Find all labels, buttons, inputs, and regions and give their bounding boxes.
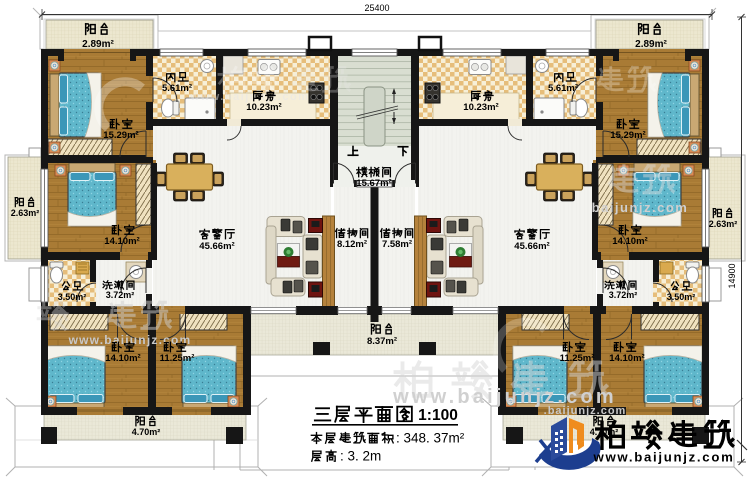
svg-text:14.10m²: 14.10m²	[104, 236, 139, 247]
svg-text:14900: 14900	[727, 263, 737, 288]
svg-text:15.29m²: 15.29m²	[610, 130, 645, 141]
svg-text:: 348. 37m²: : 348. 37m²	[396, 431, 465, 446]
svg-text:14.10m²: 14.10m²	[612, 236, 647, 247]
svg-text:11.25m²: 11.25m²	[160, 353, 195, 364]
svg-text:14.10m²: 14.10m²	[609, 353, 644, 364]
svg-text:1:100: 1:100	[418, 407, 458, 424]
svg-text:25400: 25400	[364, 3, 389, 13]
svg-text:.baijunjz.com: .baijunjz.com	[544, 405, 627, 417]
svg-text:2.63m²: 2.63m²	[11, 208, 40, 218]
svg-text:15.67m²: 15.67m²	[356, 178, 391, 189]
svg-text:: 3. 2m: : 3. 2m	[340, 449, 381, 464]
svg-text:8.37m²: 8.37m²	[367, 336, 397, 347]
svg-text:5.61m²: 5.61m²	[548, 83, 578, 94]
svg-text:14.10m²: 14.10m²	[105, 353, 140, 364]
svg-text:45.66m²: 45.66m²	[199, 241, 234, 252]
svg-text:8.12m²: 8.12m²	[337, 239, 367, 250]
svg-text:15.29m²: 15.29m²	[103, 130, 138, 141]
svg-text:www.baijunjz.com: www.baijunjz.com	[592, 450, 734, 465]
svg-text:www.baijunjz.com: www.baijunjz.com	[68, 333, 192, 347]
svg-text:7.58m²: 7.58m²	[382, 239, 412, 250]
svg-text:3.72m²: 3.72m²	[609, 290, 638, 300]
svg-text:2.63m²: 2.63m²	[709, 219, 738, 229]
svg-text:11.25m²: 11.25m²	[560, 353, 595, 364]
svg-text:4.70m²: 4.70m²	[132, 427, 161, 437]
svg-text:2.89m²: 2.89m²	[82, 39, 114, 50]
svg-text:3.50m²: 3.50m²	[667, 292, 696, 302]
svg-text:10.23m²: 10.23m²	[246, 102, 281, 113]
svg-text:3.50m²: 3.50m²	[58, 292, 87, 302]
svg-text:2.89m²: 2.89m²	[635, 39, 667, 50]
svg-text:10.23m²: 10.23m²	[463, 102, 498, 113]
svg-text:5.61m²: 5.61m²	[162, 83, 192, 94]
svg-text:baijunjz.com: baijunjz.com	[592, 200, 689, 215]
svg-text:3.72m²: 3.72m²	[106, 290, 135, 300]
svg-text:45.66m²: 45.66m²	[514, 241, 549, 252]
